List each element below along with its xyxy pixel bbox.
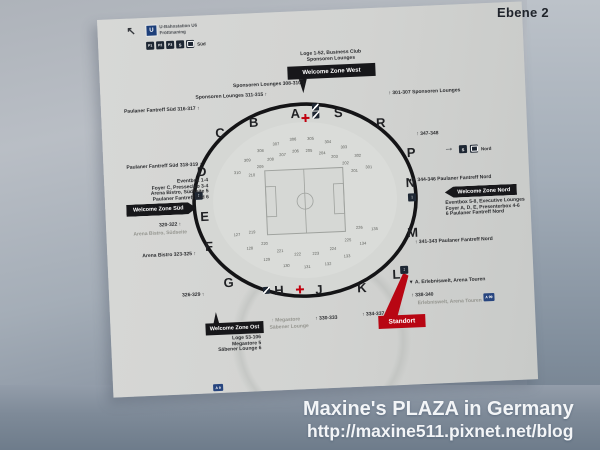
block-number: 208 — [267, 157, 274, 162]
section-R: R — [376, 115, 386, 130]
parking-p3-icon: P3 — [166, 41, 174, 49]
block-number: 220 — [261, 241, 268, 246]
watermark-line2: http://maxine511.pixnet.net/blog — [307, 421, 573, 442]
block-number: 304 — [324, 139, 331, 144]
block-number: 210 — [248, 172, 255, 177]
block-number: 129 — [263, 256, 270, 261]
elevator-icon-n: ↕ — [408, 193, 416, 201]
block-number: 222 — [294, 252, 301, 257]
label-326: 326-329 ↑ — [182, 292, 204, 299]
block-number: 207 — [279, 152, 286, 157]
ubahn-icon: U — [145, 24, 158, 37]
sbahn-icon: S — [176, 40, 184, 48]
bus-icon-nord — [470, 145, 478, 153]
section-H: H — [274, 283, 284, 298]
block-number: 135 — [371, 226, 378, 231]
autobahn-a99-icon: A 99 — [483, 293, 494, 301]
block-number: 127 — [234, 232, 241, 237]
first-aid-icon-top — [301, 114, 309, 122]
block-number: 128 — [246, 246, 253, 251]
section-F: F — [205, 239, 214, 254]
standort-badge: Standort — [378, 314, 426, 329]
block-number: 301 — [365, 164, 372, 169]
section-C: C — [215, 125, 225, 140]
watermark-line1: Maxine's PLAZA in Germany — [303, 398, 574, 421]
stadium-sign: ↖ U U-Bahnstation U6 Fröttmaning P1 P2 P… — [97, 1, 538, 397]
label-347: ↑ 347-348 — [416, 130, 438, 137]
arrow-upleft-icon: ↖ — [126, 24, 136, 37]
block-number: 306 — [289, 137, 296, 142]
section-M: M — [407, 225, 418, 240]
section-J: J — [315, 282, 323, 297]
block-number: 305 — [307, 136, 314, 141]
section-G: G — [223, 275, 234, 290]
block-number: 221 — [277, 248, 284, 253]
parking-p2-icon: P2 — [156, 41, 164, 49]
escalator-icon-top-1 — [312, 103, 319, 110]
section-P: P — [406, 145, 415, 160]
region-nord-label: Nord — [481, 146, 492, 151]
block-number: 209 — [257, 164, 264, 169]
block-number: 225 — [344, 237, 351, 242]
block-number: 302 — [354, 153, 361, 158]
welcome-zone-ost: Welcome Zone Ost — [205, 321, 263, 336]
block-number: 219 — [249, 230, 256, 235]
autobahn-a9-icon: A 9 — [213, 384, 223, 391]
elevator-icon-l: ↕ — [400, 266, 408, 274]
block-number: 205 — [306, 148, 313, 153]
block-number: 309 — [244, 158, 251, 163]
bus-icon — [186, 40, 194, 48]
section-S: S — [334, 105, 343, 120]
region-sued-label: Süd — [197, 41, 206, 46]
block-number: 201 — [351, 168, 358, 173]
sbahn-icon-nord: S — [459, 145, 467, 153]
section-B: B — [249, 115, 259, 130]
section-A: A — [290, 106, 300, 121]
wall-right — [527, 0, 600, 450]
block-number: 308 — [257, 148, 264, 153]
block-number: 134 — [359, 241, 366, 246]
block-number: 204 — [319, 150, 326, 155]
block-number: 310 — [234, 170, 241, 175]
block-number: 307 — [272, 141, 279, 146]
label-338: ↑ 338-340 — [411, 292, 433, 299]
section-K: K — [357, 280, 367, 295]
block-number: 224 — [330, 246, 337, 251]
block-number: 132 — [325, 261, 332, 266]
block-number: 223 — [312, 251, 319, 256]
block-number: 203 — [331, 154, 338, 159]
parking-p1-icon: P1 — [146, 42, 154, 50]
block-number: 133 — [344, 253, 351, 258]
block-number: 206 — [292, 149, 299, 154]
label-330: ↑ 330-333 — [315, 315, 337, 322]
arrow-right-icon: → — [444, 143, 454, 154]
block-number: 130 — [283, 262, 290, 267]
block-number: 202 — [342, 160, 349, 165]
section-E: E — [200, 209, 209, 224]
level-title: Ebene 2 — [497, 5, 549, 20]
first-aid-icon-bottom — [296, 285, 304, 293]
label-320: 320-322 ↑ — [159, 222, 181, 229]
block-number: 226 — [356, 225, 363, 230]
block-number: 303 — [340, 144, 347, 149]
escalator-icon-top-2 — [312, 111, 319, 118]
block-number: 131 — [304, 264, 311, 269]
escalator-icon-h — [263, 287, 270, 294]
